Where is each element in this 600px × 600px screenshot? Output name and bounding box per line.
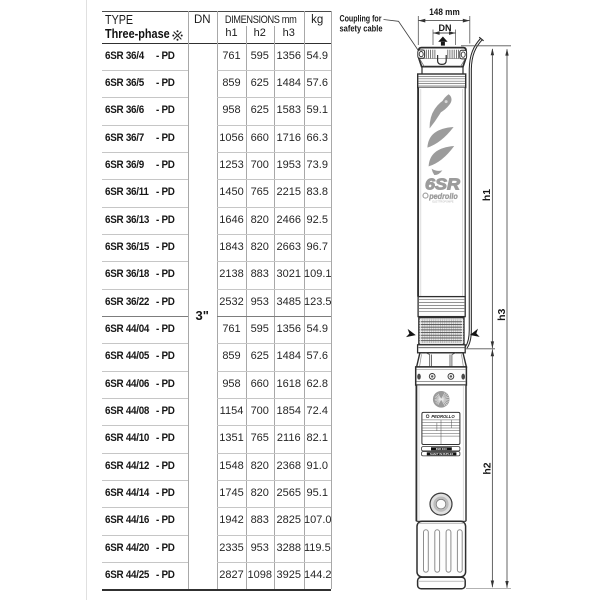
svg-text:pedrollo: pedrollo — [428, 191, 457, 201]
svg-text:h2: h2 — [481, 462, 493, 474]
svg-text:6SR XXX: 6SR XXX — [436, 447, 447, 451]
svg-text:PEDROLLO: PEDROLLO — [431, 414, 455, 419]
svg-text:SHAFT IN DUPLEX: SHAFT IN DUPLEX — [430, 452, 453, 456]
svg-text:148 mm: 148 mm — [429, 7, 460, 18]
svg-text:h3: h3 — [496, 309, 508, 321]
svg-text:ELETTROPOMPE: ELETTROPOMPE — [432, 199, 454, 203]
svg-text:h1: h1 — [481, 189, 493, 201]
svg-text:safety cable: safety cable — [340, 23, 383, 33]
svg-text:Coupling for: Coupling for — [340, 14, 382, 24]
